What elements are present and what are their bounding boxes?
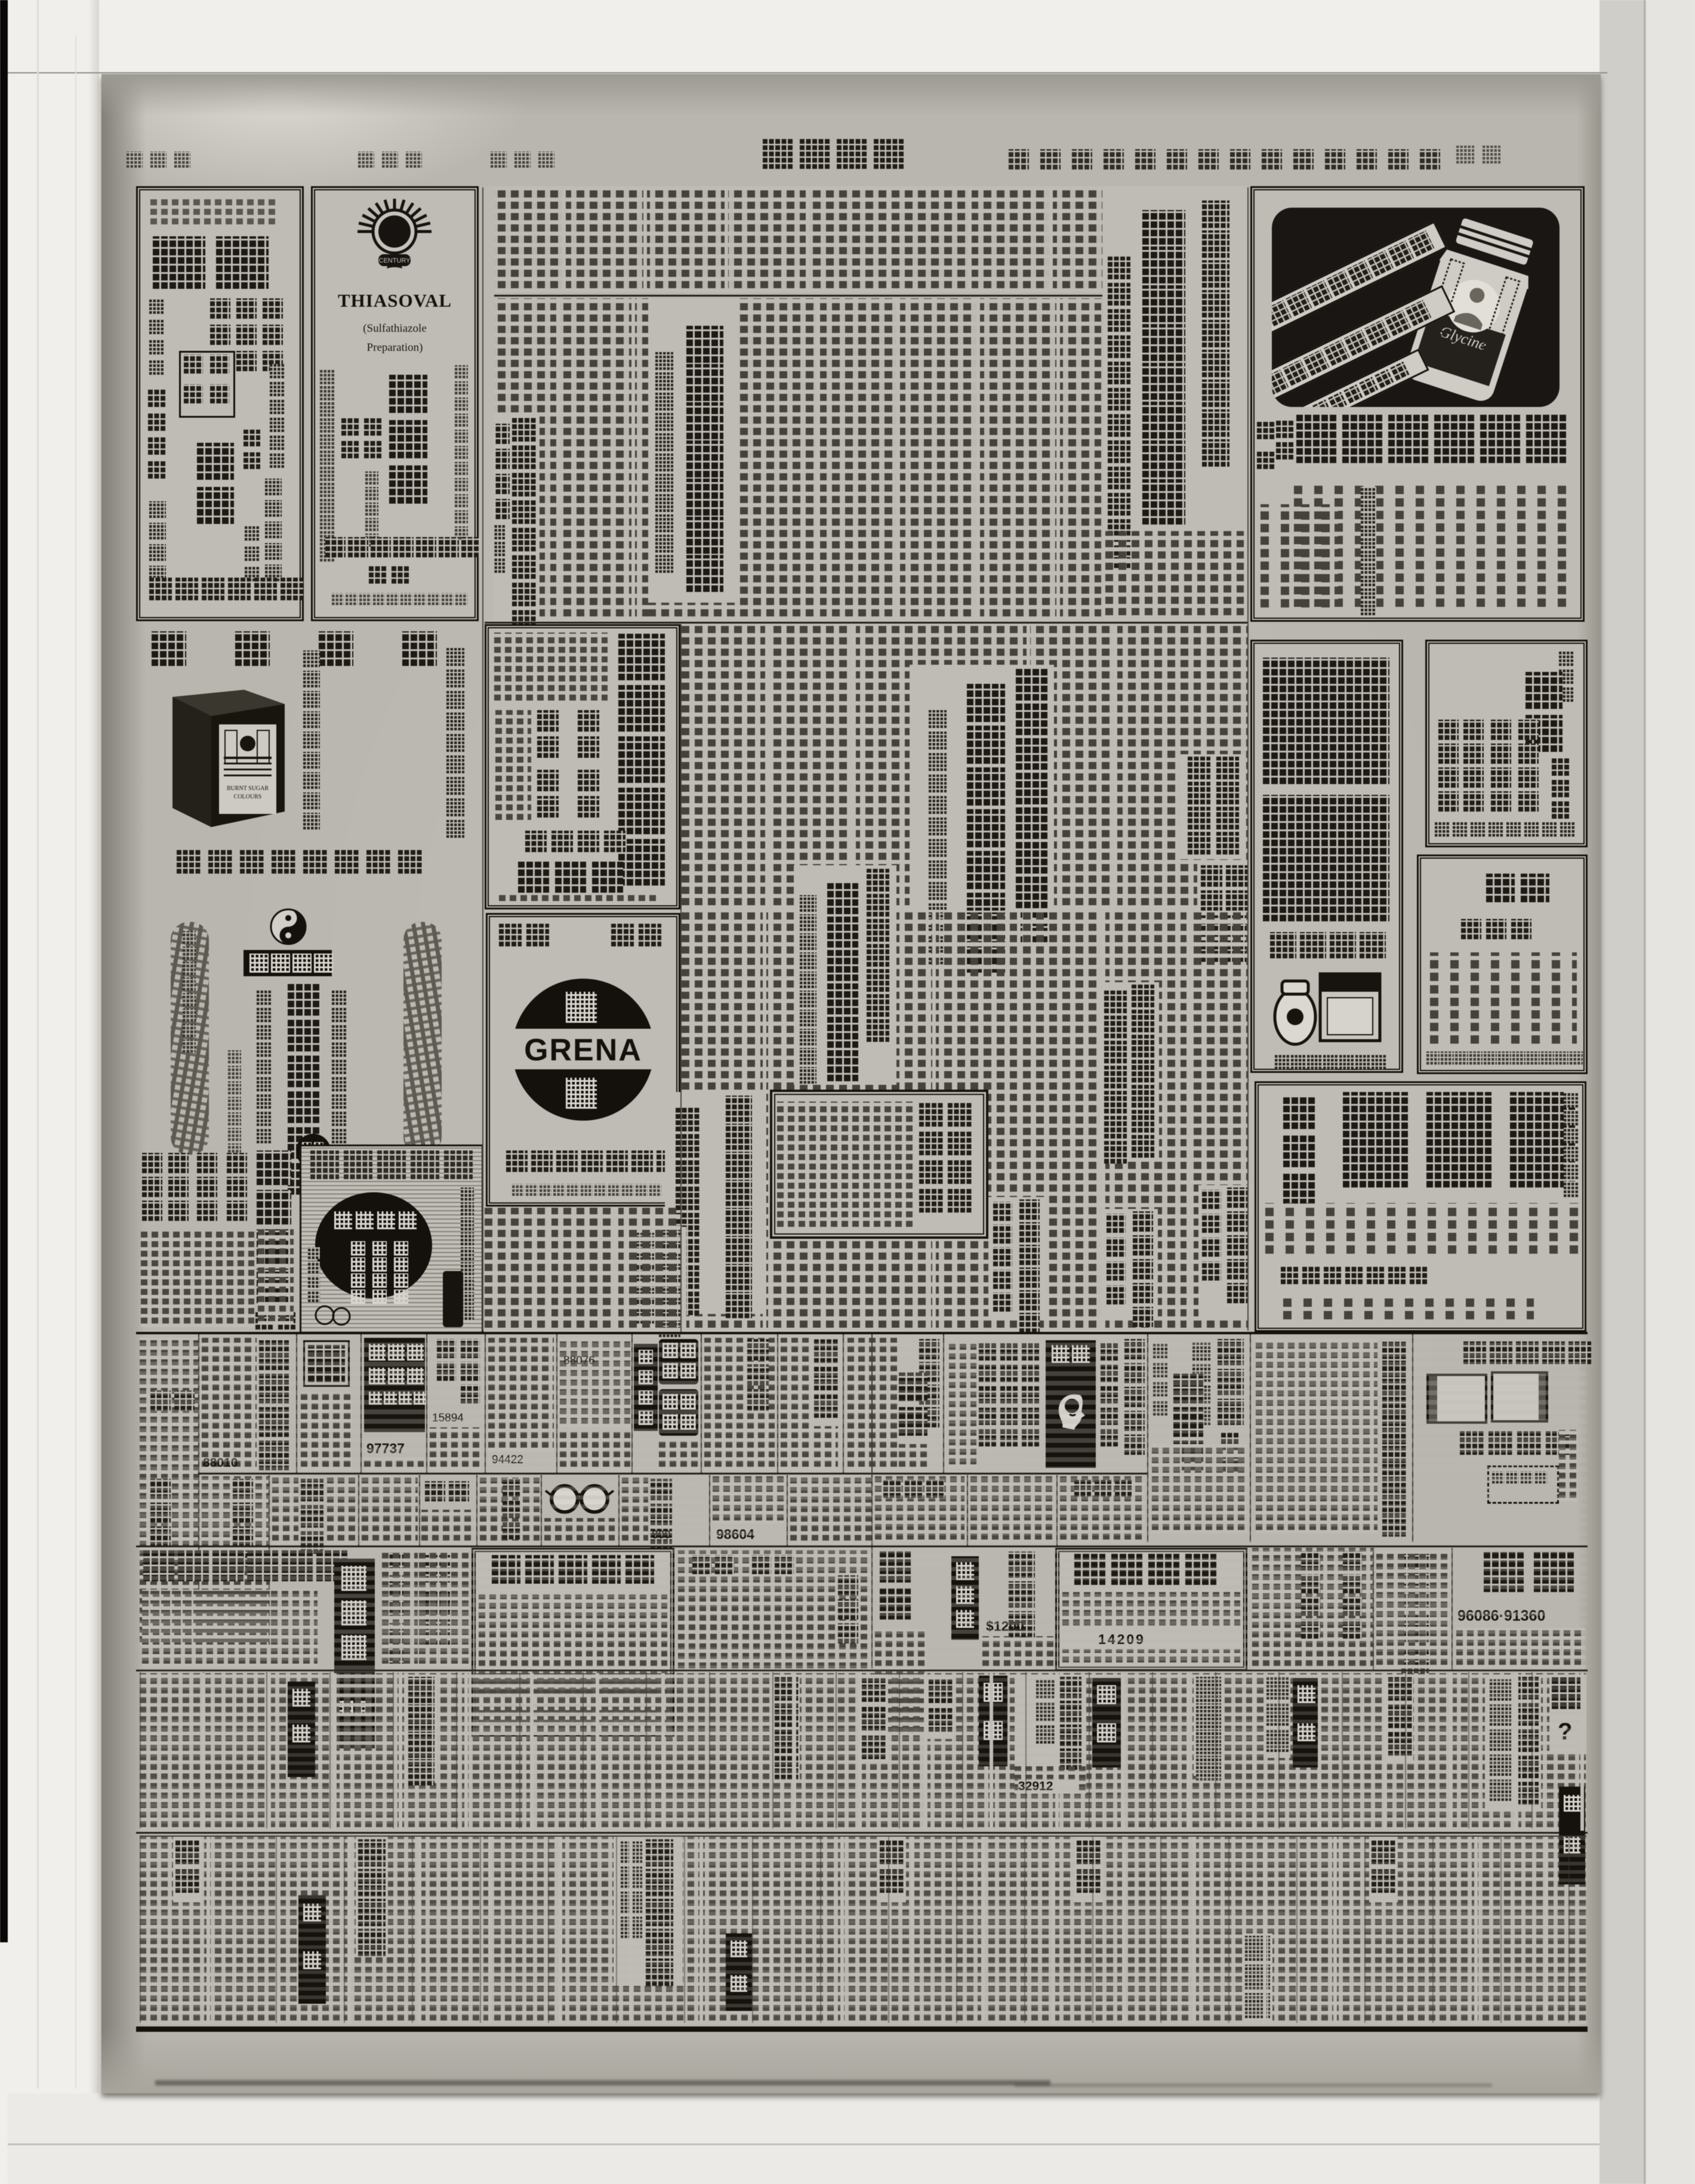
svg-text:CENTURY: CENTURY — [379, 257, 411, 264]
svg-text:BURNT SUGAR: BURNT SUGAR — [227, 785, 269, 792]
svg-text:COLOURS: COLOURS — [234, 794, 262, 800]
